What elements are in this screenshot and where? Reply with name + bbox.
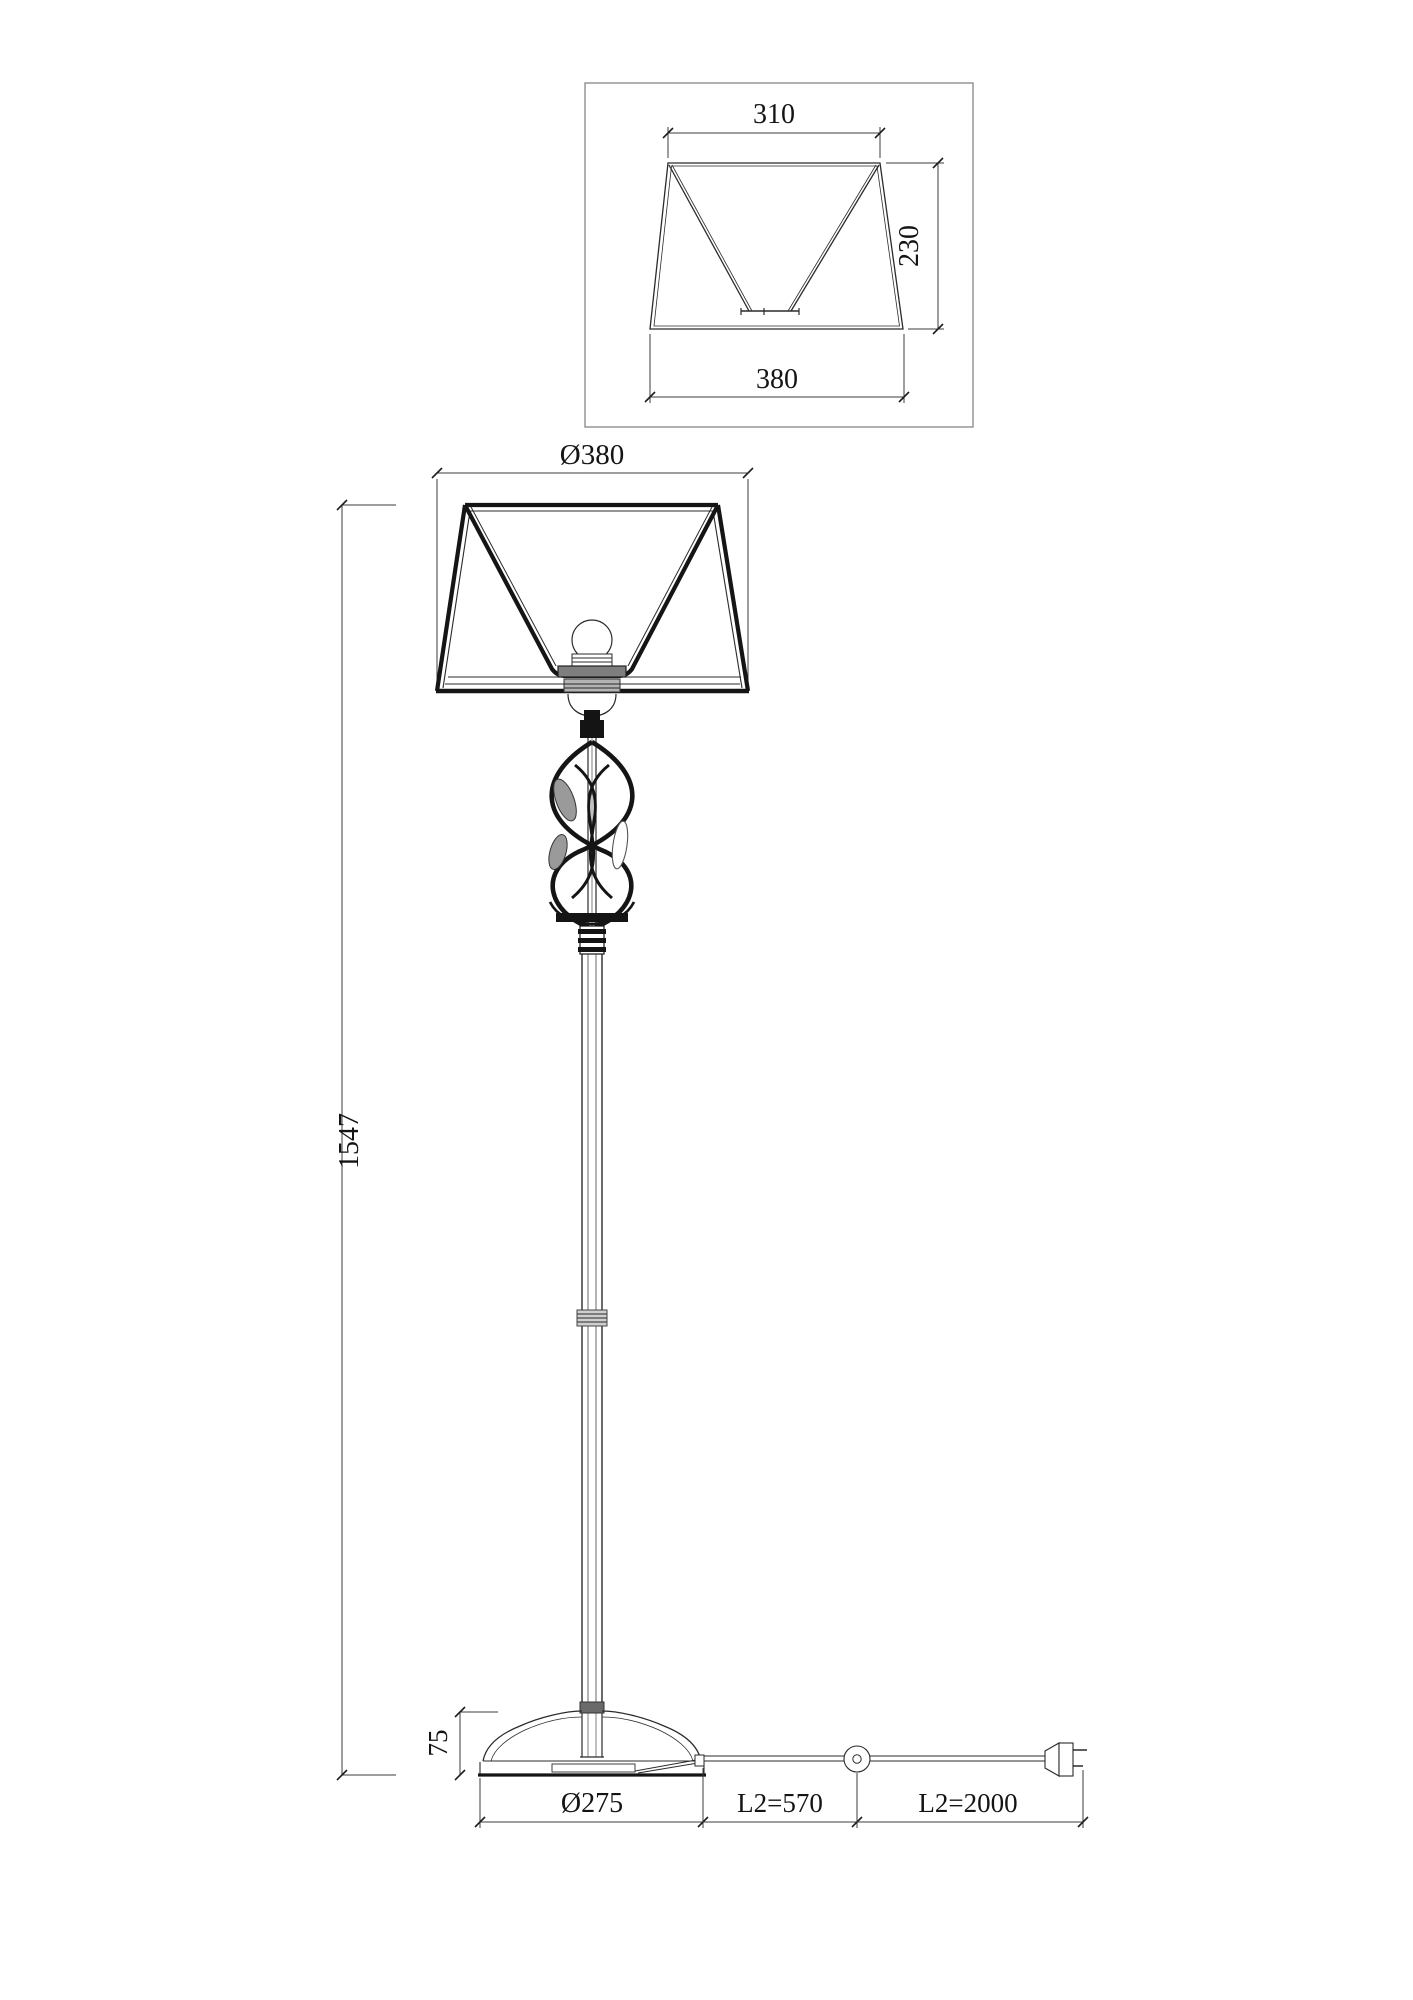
detail-view: 310 230 380 xyxy=(585,83,973,427)
ornament-top-cap xyxy=(580,720,604,738)
dim-detail-bottom-width: 380 xyxy=(645,334,909,403)
dim-base-height: 75 xyxy=(423,1707,498,1780)
pole-base-collar xyxy=(580,1702,604,1713)
cord-switch-center xyxy=(853,1755,861,1763)
lamp-pole xyxy=(577,954,607,1713)
lamp-base xyxy=(478,1711,706,1775)
base-plate xyxy=(552,1764,635,1772)
power-plug-icon xyxy=(1045,1743,1087,1776)
detail-top-width-label: 310 xyxy=(753,99,795,130)
shade-diameter-label: Ø380 xyxy=(560,439,624,471)
crystal-drop xyxy=(610,820,631,869)
cord-grommet xyxy=(695,1755,704,1766)
detail-height-label: 230 xyxy=(894,225,925,267)
dim-cord-to-plug: L2=2000 xyxy=(857,1770,1088,1828)
dim-shade-diameter: Ø380 xyxy=(432,439,753,688)
base-height-label: 75 xyxy=(423,1730,453,1757)
power-cord xyxy=(704,1743,1087,1776)
dim-base-diameter: Ø275 xyxy=(475,1768,708,1828)
base-diameter-label: Ø275 xyxy=(561,1788,623,1819)
dim-detail-height: 230 xyxy=(886,158,944,334)
dim-detail-top-width: 310 xyxy=(663,99,885,158)
lamp-socket xyxy=(558,654,626,722)
cord-to-plug-label: L2=2000 xyxy=(918,1788,1017,1818)
detail-bottom-width-label: 380 xyxy=(756,364,798,395)
ornament-bowl xyxy=(556,913,628,922)
stem-ornament xyxy=(545,720,634,954)
technical-drawing-page: 310 230 380 Ø380 xyxy=(0,0,1413,2000)
total-height-label: 1547 xyxy=(334,1113,365,1169)
dim-total-height: 1547 xyxy=(334,500,396,1780)
front-view: Ø380 1547 xyxy=(334,439,1088,1828)
crystal-leaf xyxy=(545,832,570,871)
dim-cord-to-switch: L2=570 xyxy=(703,1773,862,1828)
floor-lamp-dimension-drawing: 310 230 380 Ø380 xyxy=(0,0,1413,2000)
cord-to-switch-label: L2=570 xyxy=(737,1788,823,1818)
shade-section-outline xyxy=(650,163,903,329)
